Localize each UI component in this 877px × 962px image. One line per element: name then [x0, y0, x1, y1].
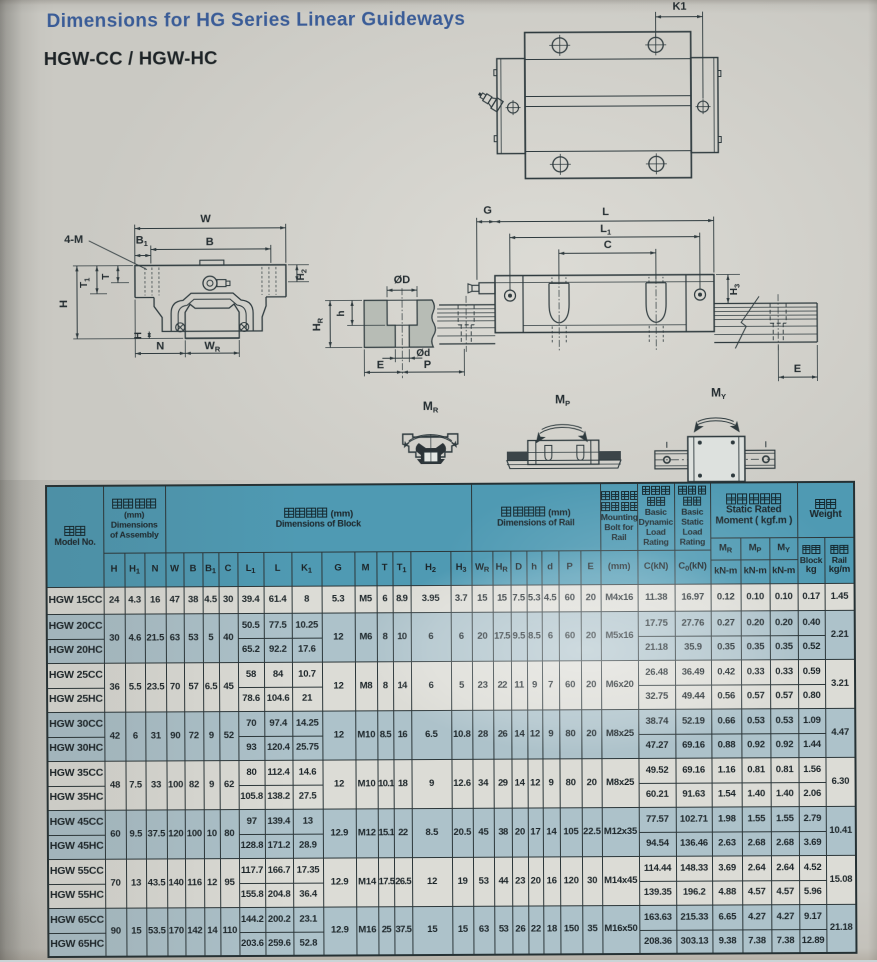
svg-text:T1: T1	[79, 278, 92, 288]
svg-text:h: h	[336, 310, 347, 316]
svg-text:B1: B1	[136, 235, 148, 249]
svg-text:ØD: ØD	[394, 274, 411, 286]
svg-text:P: P	[424, 359, 431, 371]
svg-text:HR: HR	[311, 317, 325, 331]
svg-text:C: C	[604, 239, 612, 251]
svg-text:MY: MY	[711, 385, 726, 401]
svg-text:4-M: 4-M	[64, 234, 83, 246]
svg-text:MR: MR	[423, 399, 439, 415]
svg-text:E: E	[377, 359, 384, 371]
svg-text:H: H	[58, 300, 70, 308]
svg-text:K1: K1	[672, 1, 686, 13]
svg-text:H3: H3	[729, 284, 742, 295]
svg-text:WR: WR	[204, 340, 220, 354]
svg-text:Ød: Ød	[416, 348, 430, 359]
svg-text:L1: L1	[600, 223, 611, 237]
svg-text:L: L	[602, 206, 609, 218]
svg-text:MP: MP	[555, 392, 570, 408]
svg-text:N: N	[156, 340, 164, 352]
svg-text:B: B	[206, 236, 214, 248]
svg-text:G: G	[483, 205, 492, 217]
svg-text:W: W	[200, 213, 211, 225]
svg-text:E: E	[794, 363, 801, 375]
svg-text:T: T	[101, 274, 112, 280]
svg-text:H2: H2	[296, 269, 309, 280]
